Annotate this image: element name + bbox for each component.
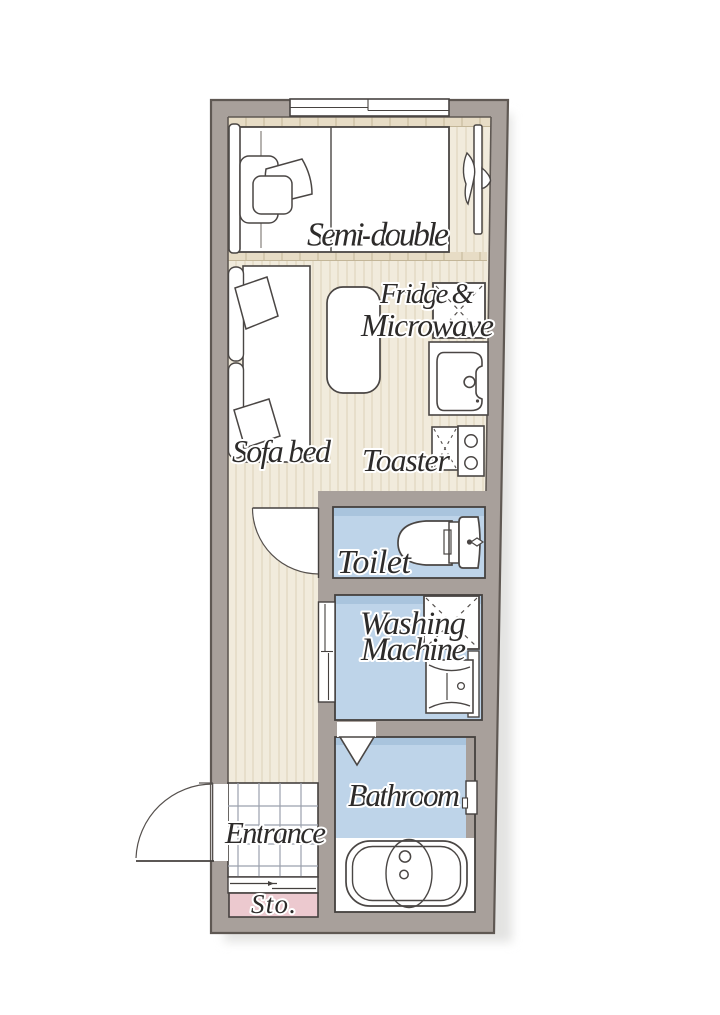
svg-text:Fridge &: Fridge &: [379, 278, 474, 310]
svg-text:Semi-double: Semi-double: [307, 217, 449, 254]
svg-text:Sofa bed: Sofa bed: [232, 433, 332, 469]
svg-text:Entrance: Entrance: [224, 815, 326, 850]
svg-text:Bathroom: Bathroom: [348, 777, 460, 813]
svg-text:Microwave: Microwave: [360, 307, 494, 343]
svg-text:Toaster: Toaster: [362, 442, 451, 478]
svg-text:Toilet: Toilet: [337, 544, 413, 581]
svg-text:Machine: Machine: [360, 632, 466, 668]
